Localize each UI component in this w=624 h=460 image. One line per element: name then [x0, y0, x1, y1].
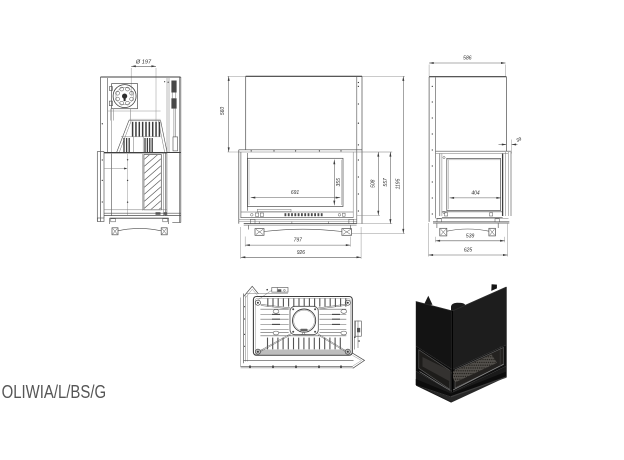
svg-text:539: 539 — [466, 233, 475, 239]
svg-text:625: 625 — [464, 247, 473, 253]
svg-text:586: 586 — [463, 55, 472, 61]
svg-text:355: 355 — [336, 178, 342, 187]
svg-text:797: 797 — [294, 238, 303, 244]
svg-text:691: 691 — [291, 190, 300, 196]
svg-text:508: 508 — [371, 179, 377, 188]
svg-text:39: 39 — [515, 136, 523, 144]
svg-text:560: 560 — [220, 107, 226, 116]
svg-text:926: 926 — [297, 250, 306, 256]
svg-text:OLIWIA/L/BS/G: OLIWIA/L/BS/G — [2, 382, 107, 402]
svg-text:Ø 197: Ø 197 — [135, 59, 152, 65]
svg-text:404: 404 — [471, 190, 480, 196]
svg-text:557: 557 — [383, 178, 389, 187]
svg-text:1195: 1195 — [396, 178, 402, 189]
